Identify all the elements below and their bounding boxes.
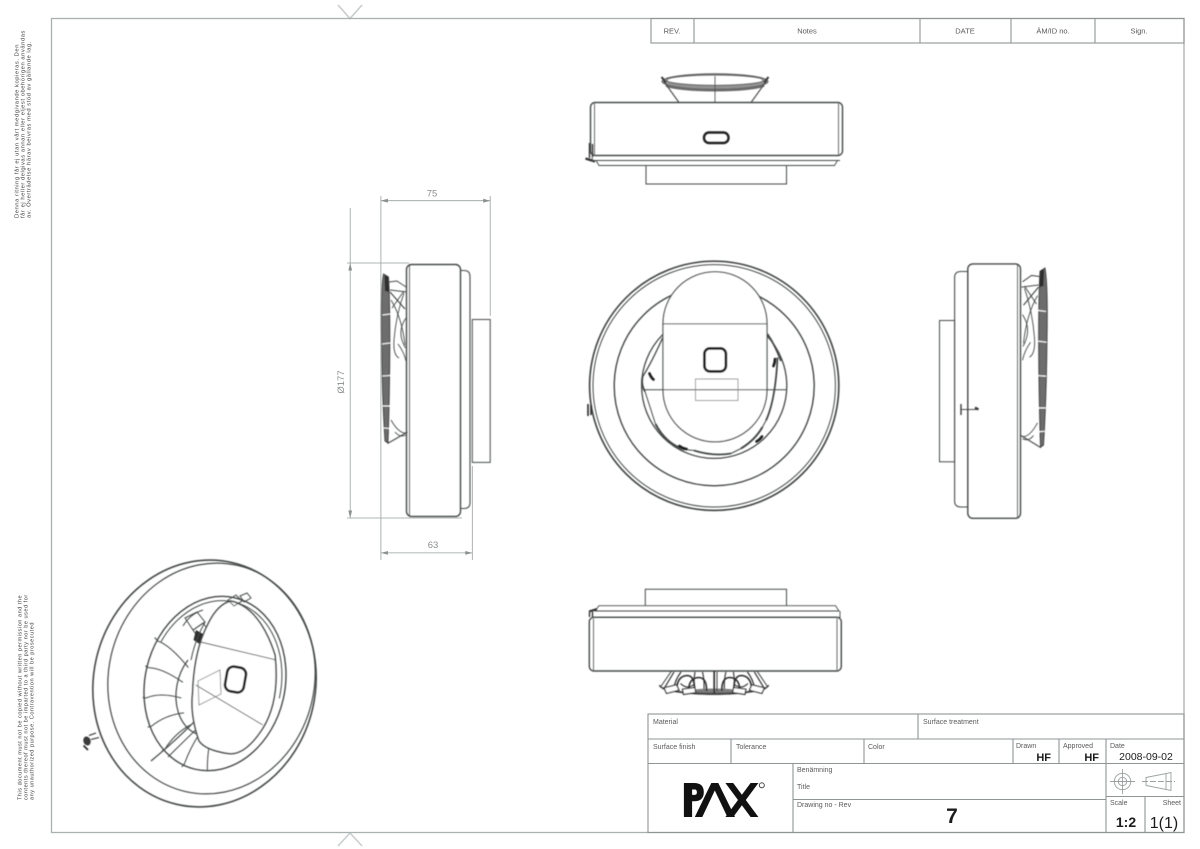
svg-text:HF: HF <box>1036 752 1051 764</box>
svg-text:Approved: Approved <box>1063 743 1093 750</box>
svg-text:Sheet: Sheet <box>1163 800 1181 807</box>
svg-text:2008-09-02: 2008-09-02 <box>1119 751 1173 763</box>
svg-text:får ej heller delgivas annan e: får ej heller delgivas annan eller eljes… <box>20 30 27 218</box>
svg-text:Surface treatment: Surface treatment <box>923 719 979 726</box>
svg-text:Date: Date <box>1110 743 1125 750</box>
svg-text:Drawn: Drawn <box>1016 743 1036 750</box>
svg-text:63: 63 <box>428 540 439 551</box>
svg-text:av. Överträdelse härav beivras: av. Överträdelse härav beivras med stöd … <box>26 41 33 218</box>
svg-text:Sign.: Sign. <box>1130 27 1147 36</box>
svg-text:Denna ritning får ej utan vårt: Denna ritning får ej utan vårt medgivand… <box>14 44 21 218</box>
svg-text:REV.: REV. <box>664 27 681 36</box>
svg-text:Benämning: Benämning <box>797 767 833 774</box>
svg-text:Scale: Scale <box>1110 800 1128 807</box>
svg-text:1:2: 1:2 <box>1116 814 1136 830</box>
svg-text:Surface finish: Surface finish <box>653 744 696 751</box>
svg-text:Tolerance: Tolerance <box>736 744 766 751</box>
svg-text:Material: Material <box>653 719 678 726</box>
svg-text:DATE: DATE <box>955 27 974 36</box>
svg-text:75: 75 <box>427 189 438 200</box>
svg-text:Color: Color <box>868 744 885 751</box>
svg-text:any unauthorized purpose. Cont: any unauthorized purpose. Contravention … <box>30 622 36 800</box>
svg-text:Title: Title <box>797 784 810 791</box>
svg-text:Ø177: Ø177 <box>336 370 347 393</box>
svg-text:Notes: Notes <box>797 27 817 36</box>
svg-text:7: 7 <box>946 805 958 828</box>
svg-text:Drawing no - Rev: Drawing no - Rev <box>797 802 852 809</box>
svg-text:HF: HF <box>1084 752 1099 764</box>
svg-text:ÄM/ID no.: ÄM/ID no. <box>1036 27 1069 36</box>
svg-text:1(1): 1(1) <box>1150 815 1178 832</box>
